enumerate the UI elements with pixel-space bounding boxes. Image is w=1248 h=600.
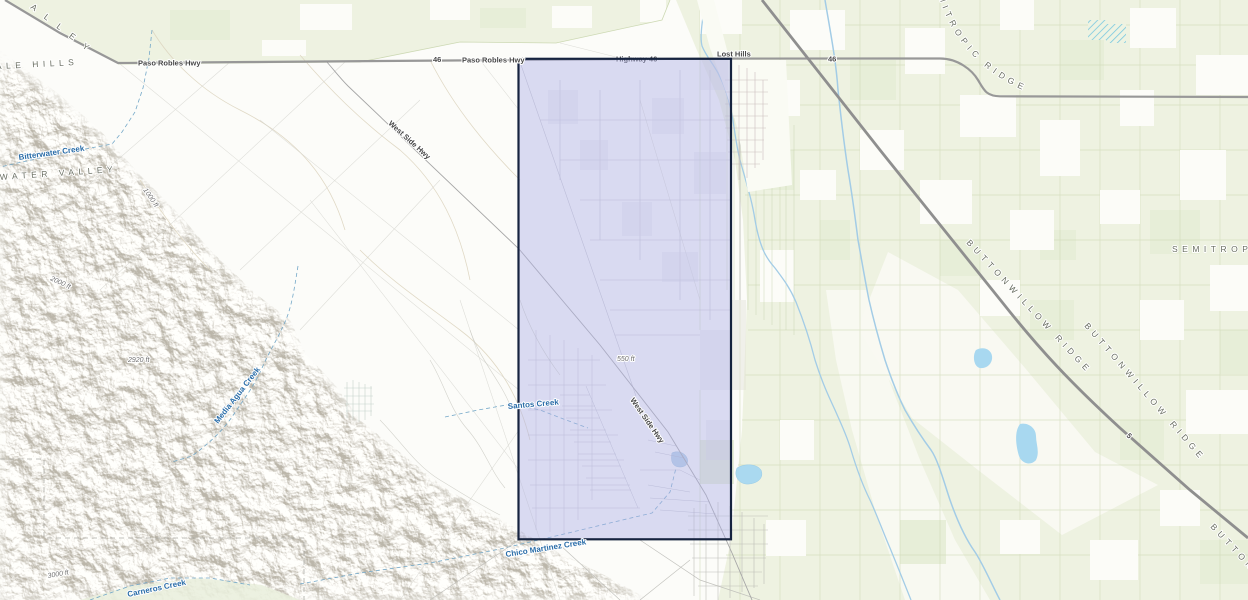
svg-text:Paso Robles Hwy: Paso Robles Hwy (138, 59, 201, 68)
svg-text:SEMITROPIC RIDGE: SEMITROPIC RIDGE (1172, 244, 1248, 254)
svg-text:2920 ft: 2920 ft (127, 357, 150, 364)
svg-text:550 ft: 550 ft (617, 356, 636, 363)
svg-text:46: 46 (828, 55, 836, 64)
svg-text:Paso Robles Hwy: Paso Robles Hwy (462, 56, 525, 65)
svg-text:Lost Hills: Lost Hills (717, 50, 751, 59)
svg-text:46: 46 (433, 55, 441, 64)
